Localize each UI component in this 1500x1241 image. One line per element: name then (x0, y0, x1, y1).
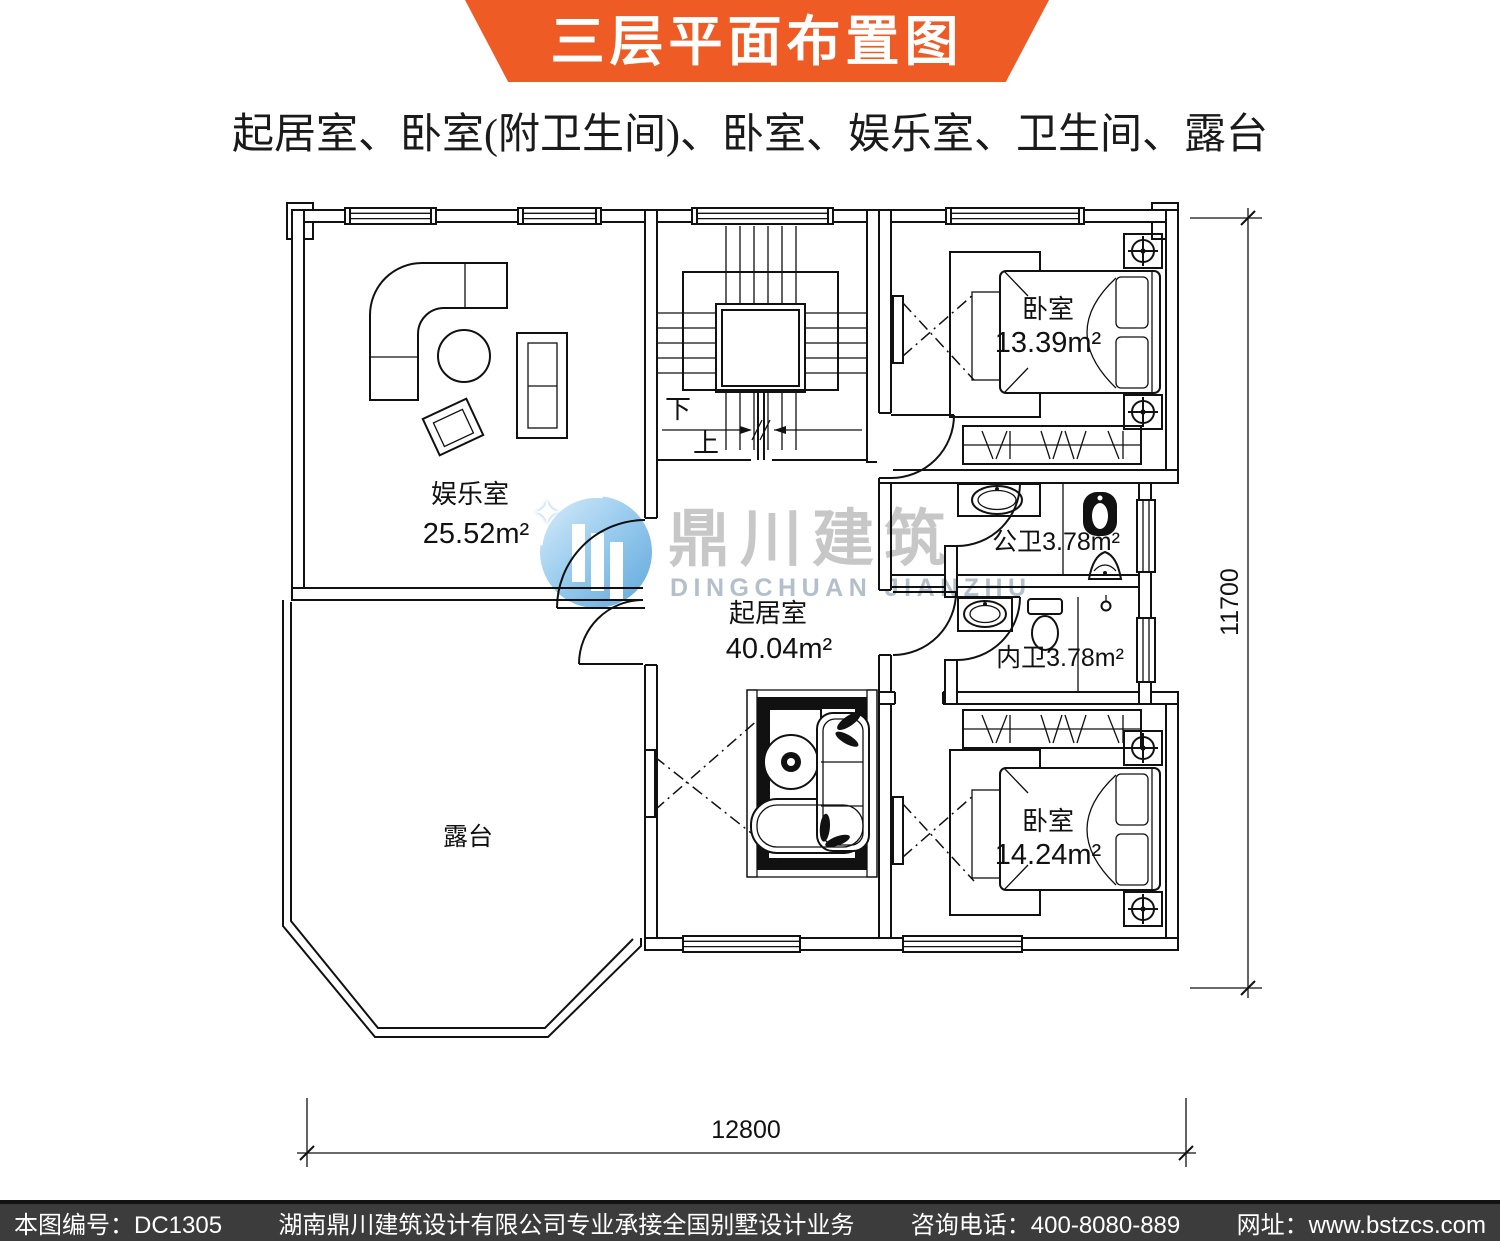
wardrobe (963, 710, 1141, 748)
room-name-entertainment: 娱乐室 (431, 479, 509, 509)
room-entertainment: 娱乐室 25.52m² (370, 263, 567, 550)
room-name-bedroom-bottom: 卧室 (1022, 806, 1074, 836)
wardrobe (963, 426, 1141, 464)
dimension-right: 11700 (1190, 208, 1262, 998)
plan-number: 本图编号：DC1305 (14, 1205, 222, 1240)
footer-bar: 本图编号：DC1305 湖南鼎川建筑设计有限公司专业承接全国别墅设计业务 咨询电… (0, 1200, 1500, 1241)
window-top-2 (518, 208, 601, 224)
sink (958, 598, 1012, 631)
door-terrace (579, 600, 643, 664)
page: 下 上 娱乐室 25.52m² (0, 0, 1500, 1241)
sink (958, 484, 1040, 516)
room-name-living: 起居室 (729, 598, 807, 628)
company-name: 湖南鼎川建筑设计有限公司专业承接全国别墅设计业务 (278, 1205, 854, 1240)
lamp-icon (1128, 397, 1158, 427)
room-area-entertainment: 25.52m² (423, 518, 530, 550)
dimension-bottom: 12800 (297, 1098, 1196, 1167)
lamp-icon (1128, 894, 1158, 924)
room-label-bath-public: 公卫3.78m² (992, 528, 1120, 556)
room-label-bath-ensuite: 内卫3.78m² (996, 644, 1124, 672)
wall-tv (893, 296, 903, 363)
room-bath-ensuite: 内卫3.78m² (958, 595, 1124, 692)
room-area-bedroom-top: 13.39m² (995, 327, 1102, 359)
sofa-rug-set (747, 690, 877, 877)
wall-tv (893, 797, 903, 864)
room-living: 起居室 40.04m² (645, 598, 877, 877)
stairs-up-label: 上 (693, 428, 719, 458)
stairs-down-label: 下 (665, 394, 691, 424)
staircase: 下 上 (657, 226, 867, 460)
armchair (423, 399, 483, 456)
sofa-l-shaped (370, 263, 507, 400)
dimension-right-value: 11700 (1216, 568, 1244, 636)
room-terrace: 露台 (283, 600, 641, 1037)
loveseat (517, 333, 567, 438)
room-name-bedroom-top: 卧室 (1022, 294, 1074, 324)
shower-head-icon (1102, 595, 1111, 611)
window-top-1 (345, 208, 436, 224)
room-bedroom-bottom: 卧室 14.24m² (893, 710, 1162, 926)
coffee-table-round (438, 330, 490, 382)
window-living-bottom (683, 936, 800, 952)
door-bedroom-top (891, 415, 954, 478)
wall-tv (645, 750, 655, 817)
window-bath-ensuite (1137, 618, 1155, 682)
lamp-icon (1128, 733, 1158, 763)
room-area-living: 40.04m² (726, 633, 833, 665)
window-bath-public (1137, 500, 1155, 572)
window-bedroom-bottom (903, 936, 1022, 952)
window-stairs (692, 208, 833, 224)
room-area-bedroom-bottom: 14.24m² (995, 839, 1102, 871)
phone-number: 咨询电话：400-8080-889 (911, 1205, 1180, 1240)
door-vestibule (893, 592, 956, 655)
room-name-terrace: 露台 (443, 823, 493, 851)
room-bath-public: 公卫3.78m² (958, 483, 1121, 579)
window-bedroom-top (946, 208, 1084, 224)
toilet (1028, 599, 1062, 650)
floor-plan-drawing: 下 上 娱乐室 25.52m² (0, 0, 1500, 1241)
lamp-icon (1128, 236, 1158, 266)
dimension-bottom-value: 12800 (711, 1116, 781, 1144)
room-bedroom-top: 卧室 13.39m² (893, 234, 1162, 464)
page-title: 三层平面布置图 (465, 0, 1049, 84)
website-link[interactable]: 网址：www.bstzcs.com (1237, 1205, 1486, 1240)
room-list-subtitle: 起居室、卧室(附卫生间)、卧室、娱乐室、卫生间、露台 (0, 100, 1500, 161)
title-banner: 三层平面布置图 (465, 0, 1049, 82)
